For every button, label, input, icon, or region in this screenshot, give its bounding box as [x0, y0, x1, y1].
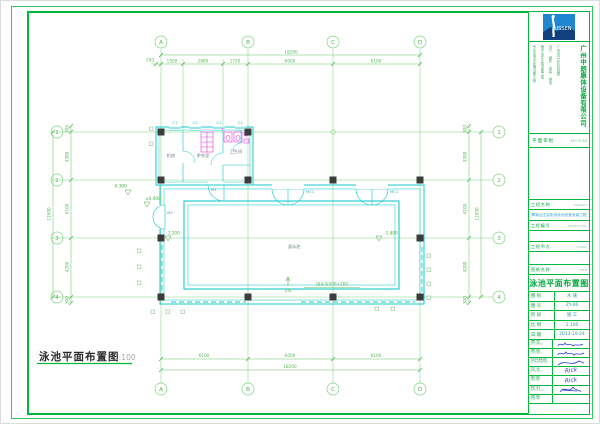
signature-text: Rick: [565, 368, 578, 376]
dim-left-4200: 4200: [65, 261, 70, 272]
dim-top-2880: 2880: [198, 59, 209, 64]
blank-cell-bottom: [529, 404, 589, 414]
drain-label: 排水沟300×200: [316, 281, 348, 288]
room-label-plant: 机房: [167, 152, 175, 159]
sign-row-designed: 设 计DESIGNED Rick: [529, 367, 589, 376]
bubble-col-c-top: C: [331, 40, 335, 46]
sign-value-checked: [553, 349, 589, 357]
bubble-row-4-right: 4: [497, 295, 501, 301]
meta-row-date: 日 期 2013-10-24: [529, 330, 589, 340]
plan-canvas: A B C D A B C D 1 2 3 4 1 2 3 4 18200 20…: [1, 1, 600, 424]
dim-right-overall: 11600: [475, 207, 480, 221]
level-outside: -0.300: [113, 184, 127, 189]
project-name-en: PROJECT: [574, 203, 589, 207]
sign-value-proofread: [553, 386, 589, 394]
sign-label-approved: 审 定APPROVED: [529, 340, 553, 348]
dim-top-6100: 6100: [371, 59, 382, 64]
bubble-row-1-left: 1: [55, 130, 59, 136]
meta-value-number: ZY-06: [555, 302, 589, 311]
sign-label-manager: 项目经理PROJ.MANAGER: [529, 358, 553, 366]
sign-label-checked: 审 核CHECKED: [529, 349, 553, 357]
bubble-col-d-top: D: [418, 40, 422, 46]
sign-label-designed: 设 计DESIGNED: [529, 367, 553, 375]
sign-row-traced: 描 图TRACED: [529, 395, 589, 404]
bubble-col-b-bottom: B: [246, 387, 250, 393]
pool-label: 游泳池: [288, 243, 301, 250]
logo-text: USSEN: [555, 26, 572, 32]
sheet-title-header: 图纸名称 TITLE: [529, 265, 589, 275]
meta-value-type: 水 施: [555, 292, 589, 301]
dim-bottom-6100a: 6100: [199, 353, 210, 358]
level-marks: -0.300 ±0.000 -1.200 -1.800: [113, 184, 398, 242]
drawing-sheet: A B C D A B C D 1 2 3 4 1 2 3 4 18200 20…: [0, 0, 600, 424]
dim-right-300b: 300: [463, 296, 468, 304]
meta-row-scale: 比 例 1:100: [529, 321, 589, 331]
dim-top-1500: 1500: [167, 59, 178, 64]
door-label-mc1-a: MC1: [306, 189, 315, 194]
window-label-c1-3: C1: [216, 120, 222, 125]
bubble-col-d-bottom: D: [418, 387, 422, 393]
bubble-col-c-bottom: C: [331, 387, 335, 393]
project-name-header: 工程名称 PROJECT: [529, 200, 589, 210]
project-no-label: 工程编号: [529, 223, 551, 229]
bubble-row-3-left: 3: [55, 236, 59, 242]
company-info-col-2: 桑拿水疗汗蒸设备工程: [540, 45, 545, 79]
sign-row-drawn: 制 图DRAWN Rick: [529, 376, 589, 385]
meta-label-type: 图 别: [529, 292, 555, 301]
bubble-row-3-right: 3: [497, 236, 501, 242]
dim-left-300a: 300: [65, 125, 70, 133]
company-info-col-1: 专业泳池水处理设备工程: [532, 45, 537, 82]
dim-left-overall: 11600: [47, 207, 52, 221]
sign-label-traced: 描 图TRACED: [529, 395, 553, 403]
sheet-title-value: 泳池平面布置图: [529, 275, 589, 292]
blank-cell-1: [529, 148, 589, 200]
bubble-col-b-top: B: [246, 40, 250, 46]
signature-scribble: [556, 340, 586, 349]
sign-value-traced: [553, 395, 589, 403]
dim-left-3300: 3300: [65, 151, 70, 162]
dim-right-4100: 4100: [463, 203, 468, 214]
approval-label: 平面审批: [529, 138, 554, 144]
client-header: 工程甲方 CLIENT: [529, 242, 589, 252]
room-label-toilet: 卫生间: [230, 148, 243, 155]
client-en: CLIENT: [576, 245, 589, 249]
dim-right-300a: 300: [463, 125, 468, 133]
window-label-c1-2: C1: [192, 120, 198, 125]
bubble-row-2-left: 2: [55, 178, 59, 184]
grid-lines: [51, 49, 493, 383]
dim-left-4100: 4100: [65, 203, 70, 214]
sign-label-proofread: 校 对PROOFREAD: [529, 386, 553, 394]
sheet-title-en: TITLE: [579, 268, 589, 272]
sign-row-approved: 审 定APPROVED: [529, 340, 589, 349]
company-info-col-4: 广州市白云区机场路: [556, 45, 561, 76]
sign-value-drawn: Rick: [553, 376, 589, 384]
sheet-title-label: 图纸名称: [529, 267, 551, 273]
signature-scribble: [556, 386, 586, 395]
sign-row-checked: 审 核CHECKED: [529, 349, 589, 358]
dim-left-300b: 300: [65, 296, 70, 304]
dim-top-1720: 1720: [230, 59, 241, 64]
door-label-m2: M2: [167, 210, 173, 215]
door-label-m1: M1: [211, 187, 217, 192]
footer-drawing-title: 泳池平面布置图: [39, 350, 120, 363]
client-value: [529, 252, 589, 265]
project-name-label: 工程名称: [529, 202, 551, 208]
company-cell: 专业泳池水处理设备工程 桑拿水疗汗蒸设备工程 设计·销售·安装·维保 广州市白云…: [529, 42, 589, 134]
window-label-c1-1: C1: [172, 120, 178, 125]
meta-row-number: 图 号 ZY-06: [529, 302, 589, 312]
sign-value-manager: [553, 358, 589, 366]
meta-label-scale: 比 例: [529, 321, 555, 330]
sign-label-drawn: 制 图DRAWN: [529, 376, 553, 384]
dimension-texts: 18200 200 1500 2880 1720 6000 6100 6100 …: [47, 50, 480, 370]
dim-bottom-6000: 6000: [285, 353, 296, 358]
client-label: 工程甲方: [529, 244, 551, 250]
meta-label-number: 图 号: [529, 302, 555, 311]
slope-label: 1%: [285, 288, 292, 293]
signature-text: Rick: [565, 377, 578, 385]
approval-value: KEY PLAN: [571, 139, 589, 143]
meta-label-date: 日 期: [529, 330, 555, 339]
project-no-value: [529, 231, 589, 242]
company-logo: USSEN: [543, 14, 575, 40]
grid-bubbles: A B C D A B C D 1 2 3 4 1 2 3 4: [51, 36, 505, 395]
door-label-mc1-b: MC1: [390, 189, 399, 194]
building-walls: [156, 126, 253, 201]
level-pool-deep: -1.800: [384, 231, 398, 236]
bubble-row-2-right: 2: [497, 178, 501, 184]
bubble-row-1-right: 1: [497, 130, 501, 136]
meta-row-type: 图 别 水 施: [529, 292, 589, 302]
dim-top-overall: 18200: [284, 50, 298, 55]
bubble-row-4-left: 4: [55, 295, 59, 301]
room-label-changing: 更衣室: [197, 152, 210, 159]
sign-row-proofread: 校 对PROOFREAD: [529, 386, 589, 395]
footer-title-group: 泳池平面布置图 1:100: [37, 350, 136, 364]
meta-value-scale: 1:100: [555, 321, 589, 330]
title-block: USSEN 专业泳池水处理设备工程 桑拿水疗汗蒸设备工程 设计·销售·安装·维保…: [528, 12, 589, 414]
sign-value-designed: Rick: [553, 367, 589, 375]
sign-row-manager: 项目经理PROJ.MANAGER: [529, 358, 589, 367]
level-entry: ±0.000: [145, 196, 161, 201]
footer-scale: 1:100: [114, 353, 136, 362]
window-label-c1-4: C1: [238, 120, 244, 125]
dim-top-200: 200: [146, 58, 154, 63]
logo-cell: USSEN: [529, 12, 589, 42]
meta-label-stage: 阶 段: [529, 311, 555, 320]
project-no-en: PROJECT NO.: [568, 224, 589, 228]
dim-bottom-6100b: 6100: [371, 353, 382, 358]
plan-labels: C1 C1 C1 C1 机房 更衣室 卫生间 M1 M2 MC1 MC1 游泳池…: [167, 120, 399, 293]
bubble-col-a-bottom: A: [159, 387, 163, 393]
dim-top-6000: 6000: [285, 59, 296, 64]
signature-scribble: [556, 358, 586, 367]
level-pool-shallow: -1.200: [166, 231, 180, 236]
bubble-col-a-top: A: [159, 40, 163, 46]
sign-value-approved: [553, 340, 589, 348]
project-name-value: 翠湖山庄会所游泳池设备安装工程: [529, 210, 589, 221]
approval-row: 平面审批 KEY PLAN: [529, 134, 589, 148]
company-info-col-3: 设计·销售·安装·维保: [548, 45, 553, 84]
company-name: 广州中朗康体设备有限公司: [578, 45, 587, 127]
dimension-lines: [51, 53, 483, 372]
signature-scribble: [556, 349, 586, 358]
project-no-header: 工程编号 PROJECT NO.: [529, 221, 589, 231]
meta-value-date: 2013-10-24: [555, 330, 589, 339]
dim-right-4200: 4200: [463, 261, 468, 272]
pier-markers: [138, 127, 431, 314]
meta-value-stage: 施 工: [555, 311, 589, 320]
dim-right-3300: 3300: [463, 151, 468, 162]
dim-bottom-overall: 18200: [283, 364, 297, 369]
meta-row-stage: 阶 段 施 工: [529, 311, 589, 321]
